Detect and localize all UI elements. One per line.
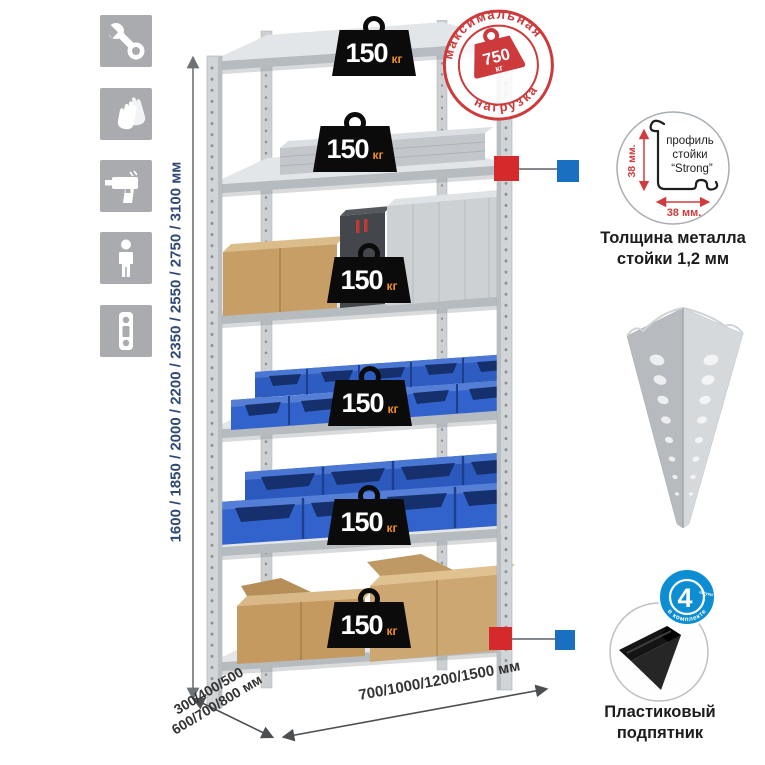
person-icon <box>100 232 152 284</box>
level-icon <box>100 305 152 357</box>
gloves-icon <box>100 88 152 140</box>
connector-marker-red <box>489 627 512 650</box>
connector-marker-red <box>494 156 519 181</box>
kit-count-number: 4 <box>677 583 692 613</box>
shelf-weight-badge: 150кг <box>327 602 411 648</box>
weight-unit: кг <box>373 149 384 161</box>
connector-line <box>518 168 558 170</box>
connector-marker-blue <box>557 160 579 182</box>
profile-caption: Толщина металла стойки 1,2 мм <box>590 228 756 271</box>
wrench-icon <box>100 15 152 67</box>
height-dimension-line <box>186 48 200 708</box>
foot-caption: Пластиковый подпятник <box>585 702 735 745</box>
profile-label-2: стойки <box>672 149 707 161</box>
corner-post-image <box>597 296 757 546</box>
shelf-weight-badge: 150кг <box>327 257 411 303</box>
weight-value: 150 <box>340 267 382 294</box>
weight-unit: кг <box>392 53 403 65</box>
height-dimension-label: 1600 / 1850 / 2000 / 2200 / 2350 / 2550 … <box>168 162 185 543</box>
weight-value: 150 <box>341 390 383 417</box>
weight-value: 150 <box>326 136 368 163</box>
profile-dim-horizontal: 38 мм. <box>667 207 702 219</box>
weight-value: 150 <box>340 509 382 536</box>
profile-caption-line1: Толщина металла <box>600 229 746 247</box>
profile-label-3: “Strong” <box>671 163 713 175</box>
profile-label-1: профиль <box>666 135 714 147</box>
drill-icon <box>100 160 152 212</box>
shelf-weight-badge: 150кг <box>328 380 412 426</box>
shelf-weight-badge: 150кг <box>332 30 416 76</box>
foot-caption-line2: подпятник <box>617 724 703 742</box>
kit-count-badge: 4 штуки в комплекте <box>656 566 718 628</box>
infographic-canvas: 1600 / 1850 / 2000 / 2200 / 2350 / 2550 … <box>0 0 765 765</box>
foot-caption-line1: Пластиковый <box>604 703 715 721</box>
profile-caption-line2: стойки 1,2 мм <box>617 250 729 268</box>
weight-unit: кг <box>387 522 398 534</box>
weight-unit: кг <box>387 625 398 637</box>
weight-value: 150 <box>345 40 387 67</box>
shelf-weight-badge: 150кг <box>313 126 397 172</box>
connector-marker-blue <box>555 630 575 650</box>
profile-dim-vertical: 38 мм. <box>626 144 638 177</box>
weight-value: 150 <box>340 612 382 639</box>
connector-line <box>510 638 556 640</box>
weight-unit: кг <box>387 280 398 292</box>
shelf-weight-badge: 150кг <box>327 499 411 545</box>
weight-unit: кг <box>388 403 399 415</box>
post-profile-callout: 38 мм. 38 мм. профиль стойки “Strong” <box>608 104 738 234</box>
